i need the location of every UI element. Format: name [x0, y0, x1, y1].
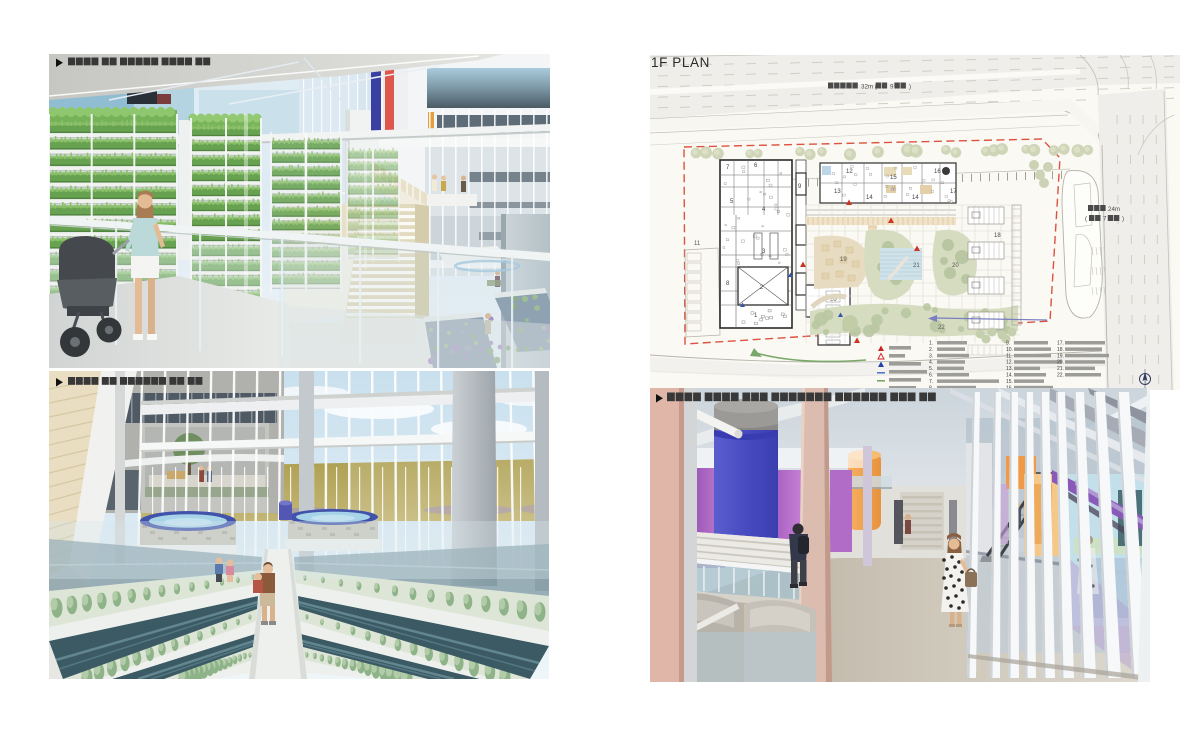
- svg-text:19: 19: [840, 257, 847, 263]
- svg-text:22.: 22.: [1057, 373, 1064, 379]
- svg-text:18: 18: [994, 233, 1001, 239]
- svg-text:1F PLAN: 1F PLAN: [651, 55, 710, 70]
- svg-text:32m (: 32m (: [861, 84, 878, 91]
- svg-text:6.: 6.: [929, 373, 933, 379]
- svg-text:12.: 12.: [1006, 360, 1013, 366]
- svg-text:10.: 10.: [1006, 347, 1013, 353]
- svg-text:14.: 14.: [1006, 373, 1013, 379]
- svg-text:3.: 3.: [929, 353, 933, 359]
- svg-text:4.: 4.: [929, 360, 933, 366]
- svg-text:13.: 13.: [1006, 366, 1013, 372]
- svg-text:21: 21: [913, 263, 920, 269]
- svg-text:1.: 1.: [929, 341, 933, 347]
- svg-text:5.: 5.: [929, 366, 933, 372]
- svg-text:15: 15: [890, 175, 897, 181]
- svg-text:): ): [909, 84, 911, 91]
- svg-text:22: 22: [938, 325, 945, 331]
- svg-text:9.: 9.: [1006, 341, 1010, 347]
- svg-text:14: 14: [866, 195, 873, 201]
- svg-text:18.: 18.: [1057, 347, 1064, 353]
- svg-text:17: 17: [950, 189, 957, 195]
- svg-text:20.: 20.: [1057, 360, 1064, 366]
- svg-text:7.: 7.: [929, 379, 933, 385]
- svg-text:13: 13: [834, 189, 841, 195]
- svg-text:14: 14: [912, 195, 919, 201]
- svg-text:12: 12: [846, 169, 853, 175]
- svg-text:17.: 17.: [1057, 341, 1064, 347]
- svg-text:2.: 2.: [929, 347, 933, 353]
- svg-text:20: 20: [952, 263, 959, 269]
- svg-text:11: 11: [694, 241, 701, 247]
- svg-text:15.: 15.: [1006, 379, 1013, 385]
- svg-text:): ): [1122, 216, 1124, 223]
- svg-text:21.: 21.: [1057, 366, 1064, 372]
- svg-text:9: 9: [890, 84, 894, 91]
- svg-text:24m: 24m: [1108, 206, 1120, 213]
- svg-text:19.: 19.: [1057, 353, 1064, 359]
- svg-text:11.: 11.: [1006, 353, 1013, 359]
- svg-text:7: 7: [1103, 216, 1107, 223]
- svg-text:16: 16: [934, 169, 941, 175]
